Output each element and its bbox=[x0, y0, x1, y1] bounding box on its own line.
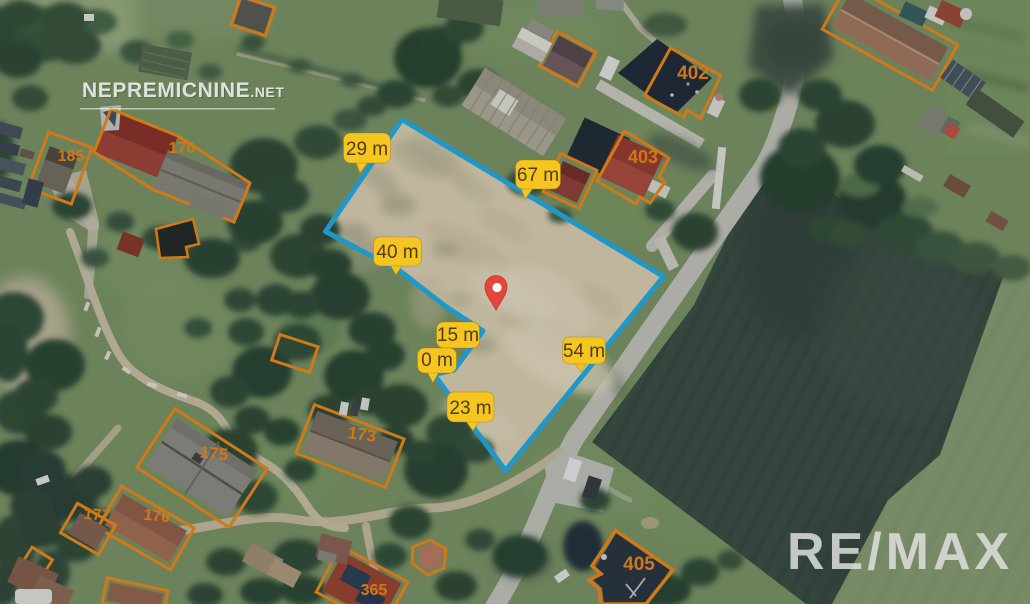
svg-text:15 m: 15 m bbox=[437, 325, 479, 346]
svg-text:29 m: 29 m bbox=[346, 139, 388, 160]
svg-text:67 m: 67 m bbox=[517, 165, 559, 186]
svg-text:54 m: 54 m bbox=[563, 341, 605, 362]
svg-text:23 m: 23 m bbox=[449, 398, 491, 419]
svg-text:RE/MAX: RE/MAX bbox=[787, 523, 1013, 581]
svg-text:40 m: 40 m bbox=[376, 242, 418, 263]
svg-text:0 m: 0 m bbox=[421, 350, 453, 371]
